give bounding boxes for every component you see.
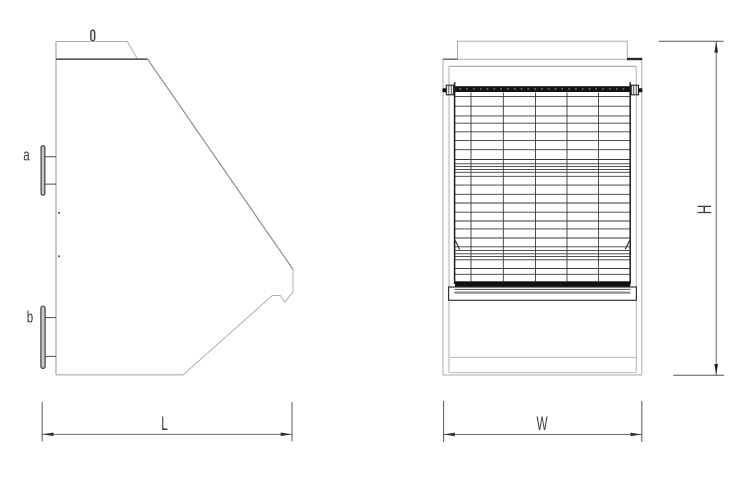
svg-text:H: H	[695, 205, 716, 215]
svg-text:b: b	[27, 308, 33, 327]
svg-text:L: L	[161, 414, 168, 434]
svg-text:a: a	[23, 146, 30, 165]
svg-text:W: W	[536, 414, 547, 434]
